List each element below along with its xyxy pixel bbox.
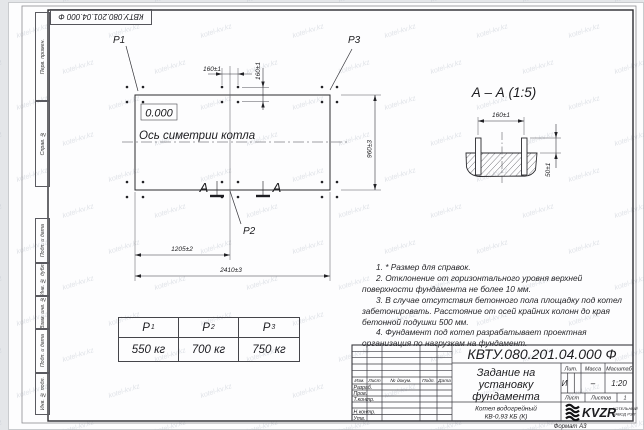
svg-text:Задание на: Задание на	[477, 367, 536, 379]
svg-text:Н.контр.: Н.контр.	[354, 410, 376, 416]
stamp-podp-data-1: Подп. и дата	[35, 218, 50, 264]
drawing-sheet-stage: kotel-kv.kzkotel-kv.kzkotel-kv.kzkotel-k…	[0, 0, 644, 430]
svg-text:Лист: Лист	[564, 396, 580, 402]
svg-text:160±1: 160±1	[255, 62, 262, 80]
svg-text:Котел водогрейный: Котел водогрейный	[475, 405, 537, 413]
note-2: 2. Отклонение от горизонтального уровня …	[362, 273, 630, 295]
svg-text:А: А	[199, 180, 209, 195]
coil-icon	[566, 405, 579, 420]
svg-text:Листов: Листов	[590, 396, 611, 402]
kvzr-logo: KVZR	[566, 405, 616, 420]
stamp-inv-podl: Инв. № подл.	[35, 372, 50, 415]
dim-960: 960±3	[341, 95, 381, 190]
svg-text:Масштаб: Масштаб	[606, 367, 633, 373]
svg-text:2410±3: 2410±3	[219, 267, 242, 274]
svg-text:1: 1	[623, 396, 626, 402]
stamp-vzam-inv: Взам. инв. №	[35, 295, 50, 330]
note-4: 4. Фундамент под котел разрабатывает про…	[362, 327, 630, 349]
load-table: P1 P2 P3 550 кг 700 кг 750 кг	[118, 317, 300, 362]
svg-text:Утв.: Утв.	[354, 416, 366, 422]
dim-160-horizontal: 160±1	[203, 66, 252, 85]
load-table-header: P2	[179, 318, 239, 338]
note-3: 3. В случае отсутствия бетонного пола пл…	[362, 295, 630, 328]
dim-160-vertical: 160±1	[242, 62, 269, 110]
axis-label: Ось симетрии котла	[139, 130, 255, 142]
svg-text:Изм.: Изм.	[354, 378, 364, 384]
section-title: А – А (1:5)	[471, 85, 537, 100]
svg-text:KVZR: KVZR	[582, 406, 616, 420]
svg-text:КОТЕЛЬНЫЙ: КОТЕЛЬНЫЙ	[613, 406, 638, 411]
svg-text:Масса: Масса	[585, 367, 601, 373]
dim-1205: 1205±2	[135, 246, 230, 257]
section-view: А – А (1:5) 160±1	[444, 85, 561, 183]
plan-label-p1: P1	[113, 35, 125, 46]
svg-text:КВ-0,93 КБ (К): КВ-0,93 КБ (К)	[485, 414, 528, 421]
svg-text:960±3: 960±3	[367, 140, 374, 158]
svg-text:И: И	[562, 379, 568, 388]
svg-text:№ докум.: № докум.	[390, 378, 411, 384]
load-table-header: P3	[239, 318, 299, 338]
svg-text:Лит.: Лит.	[564, 367, 578, 373]
svg-text:Т.контр.: Т.контр.	[354, 397, 375, 403]
svg-text:160±1: 160±1	[203, 66, 221, 73]
svg-text:фундамента: фундамента	[472, 391, 540, 403]
svg-text:1:20: 1:20	[611, 379, 627, 388]
notes-block: 1. * Размер для справок. 2. Отклонение о…	[362, 262, 630, 349]
plan-view: P1 P3 P2 0.000 Ось симетрии котла 160±1 …	[113, 35, 381, 281]
top-designation-stamp: КВТУ.080.201.04.000 Ф	[50, 9, 152, 25]
plan-label-p2: P2	[243, 226, 256, 237]
plan-label-p3: P3	[348, 35, 361, 46]
load-table-value: 550 кг	[119, 338, 179, 361]
dim-2410: 2410±3	[135, 267, 330, 278]
drawing-linework: P1 P3 P2 0.000 Ось симетрии котла 160±1 …	[0, 0, 644, 430]
svg-text:А: А	[272, 180, 282, 195]
format-label: Формат А3	[554, 424, 587, 430]
stamp-podp-data-2: Подп. и дата	[35, 328, 50, 374]
svg-text:Подп.: Подп.	[422, 378, 435, 384]
svg-text:–: –	[590, 379, 596, 388]
stamp-sprav-no: Справ. №	[35, 100, 50, 187]
svg-text:160±1: 160±1	[492, 112, 510, 119]
section-cut-marks: А А	[199, 180, 282, 196]
load-table-value: 700 кг	[179, 338, 239, 361]
title-block: КВТУ.080.201.04.000 Ф Задание на установ…	[352, 345, 638, 430]
svg-text:1205±2: 1205±2	[171, 246, 193, 253]
svg-text:ЗАВОД РЭП: ЗАВОД РЭП	[613, 412, 636, 417]
svg-text:Дата: Дата	[437, 378, 451, 384]
svg-text:установку: установку	[478, 379, 535, 391]
load-table-header: P1	[119, 318, 179, 338]
svg-text:50±1: 50±1	[545, 162, 552, 177]
load-table-value: 750 кг	[239, 338, 299, 361]
stamp-inv-dubl: Инв. № дубл.	[35, 262, 50, 297]
svg-text:Лист: Лист	[367, 378, 380, 384]
stamp-perv-primen: Перв. примен.	[35, 12, 50, 102]
note-1: 1. * Размер для справок.	[362, 262, 630, 273]
elevation-mark: 0.000	[145, 108, 173, 120]
